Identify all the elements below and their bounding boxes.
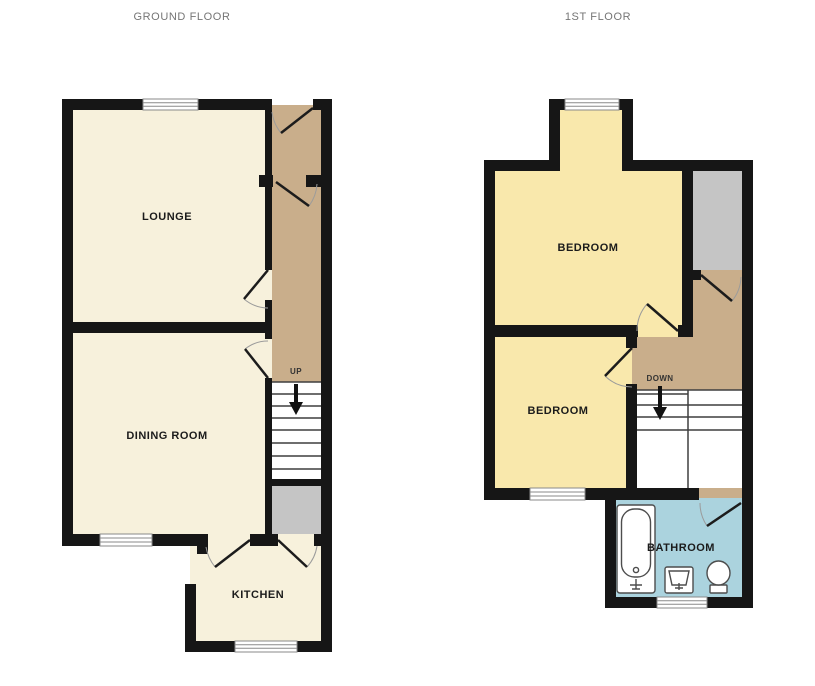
- first-floor-plan: 1ST FLOOR BEDROOM BEDROOM BATHROOM DOWN: [484, 11, 753, 608]
- store-area-ground: [272, 486, 321, 534]
- dining-door-gap: [265, 339, 272, 378]
- dining-window: [100, 534, 152, 546]
- kitchen-label: KITCHEN: [232, 589, 284, 601]
- store-area-first: [688, 166, 746, 275]
- down-label: DOWN: [647, 374, 674, 383]
- floorplan-page: GROUND FLOOR LOUNGE DINING ROOM KITCHEN …: [0, 0, 815, 686]
- bedroom2-window: [530, 488, 585, 500]
- lounge-window: [143, 99, 198, 110]
- kitchen-window: [235, 641, 297, 652]
- landing-area: [632, 337, 742, 394]
- sink-icon: [665, 567, 693, 593]
- store-kitchen-gap: [278, 534, 314, 544]
- bedroom1-window: [565, 99, 619, 110]
- bedroom1-label: BEDROOM: [558, 242, 619, 254]
- ground-floor-plan: GROUND FLOOR LOUNGE DINING ROOM KITCHEN …: [62, 11, 332, 652]
- bathroom-label: BATHROOM: [647, 542, 715, 554]
- landing-upper-area: [688, 270, 744, 337]
- bedroom1-bay-area: [557, 107, 626, 171]
- ground-floor-title: GROUND FLOOR: [133, 11, 230, 23]
- floorplan-canvas: GROUND FLOOR LOUNGE DINING ROOM KITCHEN …: [0, 0, 815, 686]
- up-label: UP: [290, 367, 302, 376]
- dining-room-label: DINING ROOM: [126, 430, 207, 442]
- hallway-area: [268, 105, 321, 385]
- bathroom-window: [657, 597, 707, 608]
- toilet-icon: [707, 561, 730, 593]
- first-floor-title: 1ST FLOOR: [565, 11, 631, 23]
- bedroom2-label: BEDROOM: [528, 405, 589, 417]
- lounge-label: LOUNGE: [142, 211, 192, 223]
